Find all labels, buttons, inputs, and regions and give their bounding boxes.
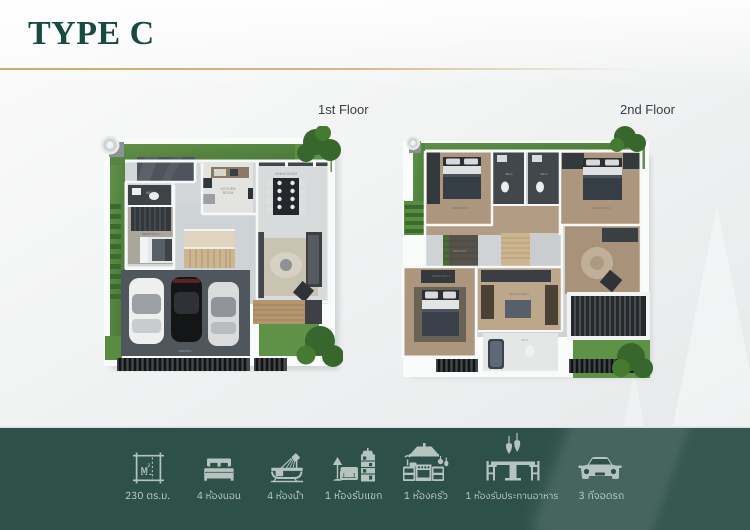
svg-text:BEDROOM 3: BEDROOM 3 bbox=[452, 206, 470, 210]
svg-text:ROOM: ROOM bbox=[223, 191, 234, 195]
svg-text:BALCONY: BALCONY bbox=[453, 249, 467, 253]
svg-text:BEDROOM 2: BEDROOM 2 bbox=[593, 206, 611, 210]
svg-text:WC 2: WC 2 bbox=[541, 172, 548, 176]
svg-text:KIDS GALLERY: KIDS GALLERY bbox=[509, 292, 529, 296]
svg-text:PARKING: PARKING bbox=[178, 349, 192, 353]
svg-text:BEDROOM 1: BEDROOM 1 bbox=[432, 274, 450, 278]
svg-text:DINING ROOM: DINING ROOM bbox=[275, 172, 297, 176]
svg-text:WC 1: WC 1 bbox=[522, 338, 529, 342]
svg-text:WC 3: WC 3 bbox=[506, 172, 513, 176]
svg-text:WC 1: WC 1 bbox=[146, 191, 154, 195]
svg-text:BEDROOM 1: BEDROOM 1 bbox=[142, 232, 160, 236]
